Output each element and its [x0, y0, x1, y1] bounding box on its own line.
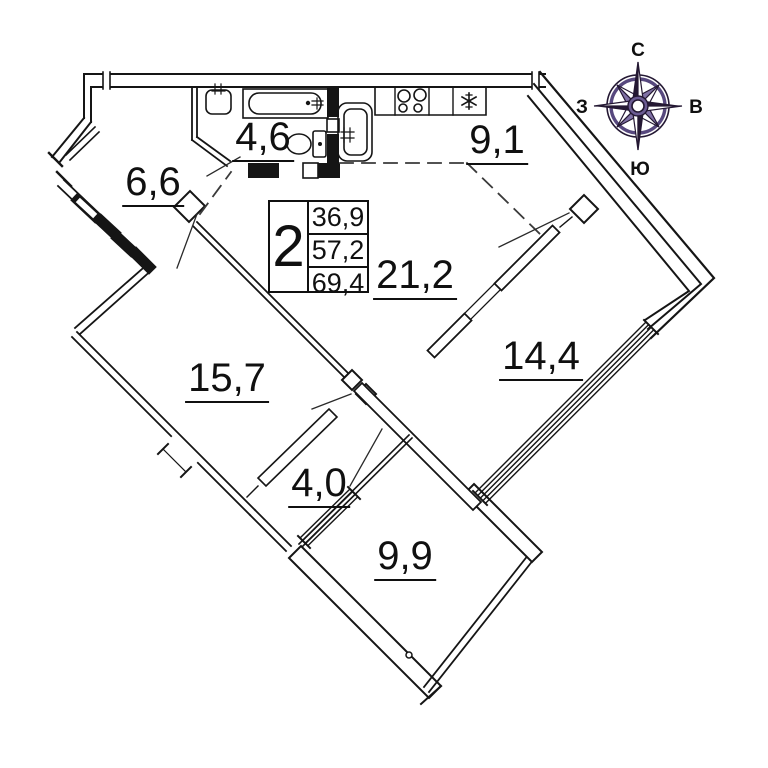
leader-hall-door	[177, 214, 197, 268]
room-label-hall: 6,6	[122, 161, 184, 207]
dashed-hall-living	[200, 172, 231, 214]
usable-area-value: 57,2	[309, 235, 367, 268]
compass-label-east: В	[689, 97, 703, 118]
leader-lines	[177, 157, 569, 486]
refrigerator	[462, 93, 476, 109]
room-count: 2	[270, 202, 307, 291]
room-label-bathroom: 4,6	[232, 116, 294, 162]
window-15-7	[151, 433, 202, 484]
compass-rose-icon: С Ю З В	[576, 40, 703, 180]
living-area-value: 36,9	[309, 202, 367, 235]
compass-label-west: З	[576, 97, 588, 118]
dashed-kitchen-living-diag	[467, 163, 541, 235]
window-hall-bay	[78, 200, 149, 267]
area-column: 36,9 57,2 69,4	[307, 202, 367, 291]
room-label-kitchen: 9,1	[466, 119, 528, 165]
room-label-bedroom-left: 15,7	[185, 357, 269, 403]
compass-label-south: Ю	[630, 159, 650, 180]
floor-plan-page: { "info_box": { "room_count": "2", "area…	[0, 0, 768, 768]
total-area-value: 69,4	[309, 268, 367, 299]
stove	[398, 89, 426, 112]
snowflake-icon	[462, 93, 476, 109]
apartment-info-box: 2 36,9 57,2 69,4	[268, 200, 369, 293]
room-label-bedroom-right: 14,4	[499, 335, 583, 381]
compass-label-north: С	[631, 40, 645, 61]
bathtub	[243, 89, 328, 118]
wall-corridor-bedroom-right	[354, 383, 481, 510]
leader-door-posts	[312, 394, 351, 409]
room-label-living: 21,2	[373, 254, 457, 300]
wash-basin	[206, 84, 231, 114]
leader-vent	[499, 213, 569, 247]
room-label-bedroom-bottom: 9,9	[374, 535, 436, 581]
kitchen-sink	[338, 103, 372, 161]
room-label-corridor: 4,0	[288, 462, 350, 508]
floor-plan-svg: С Ю З В	[0, 0, 768, 768]
vent-shaft	[560, 195, 598, 227]
